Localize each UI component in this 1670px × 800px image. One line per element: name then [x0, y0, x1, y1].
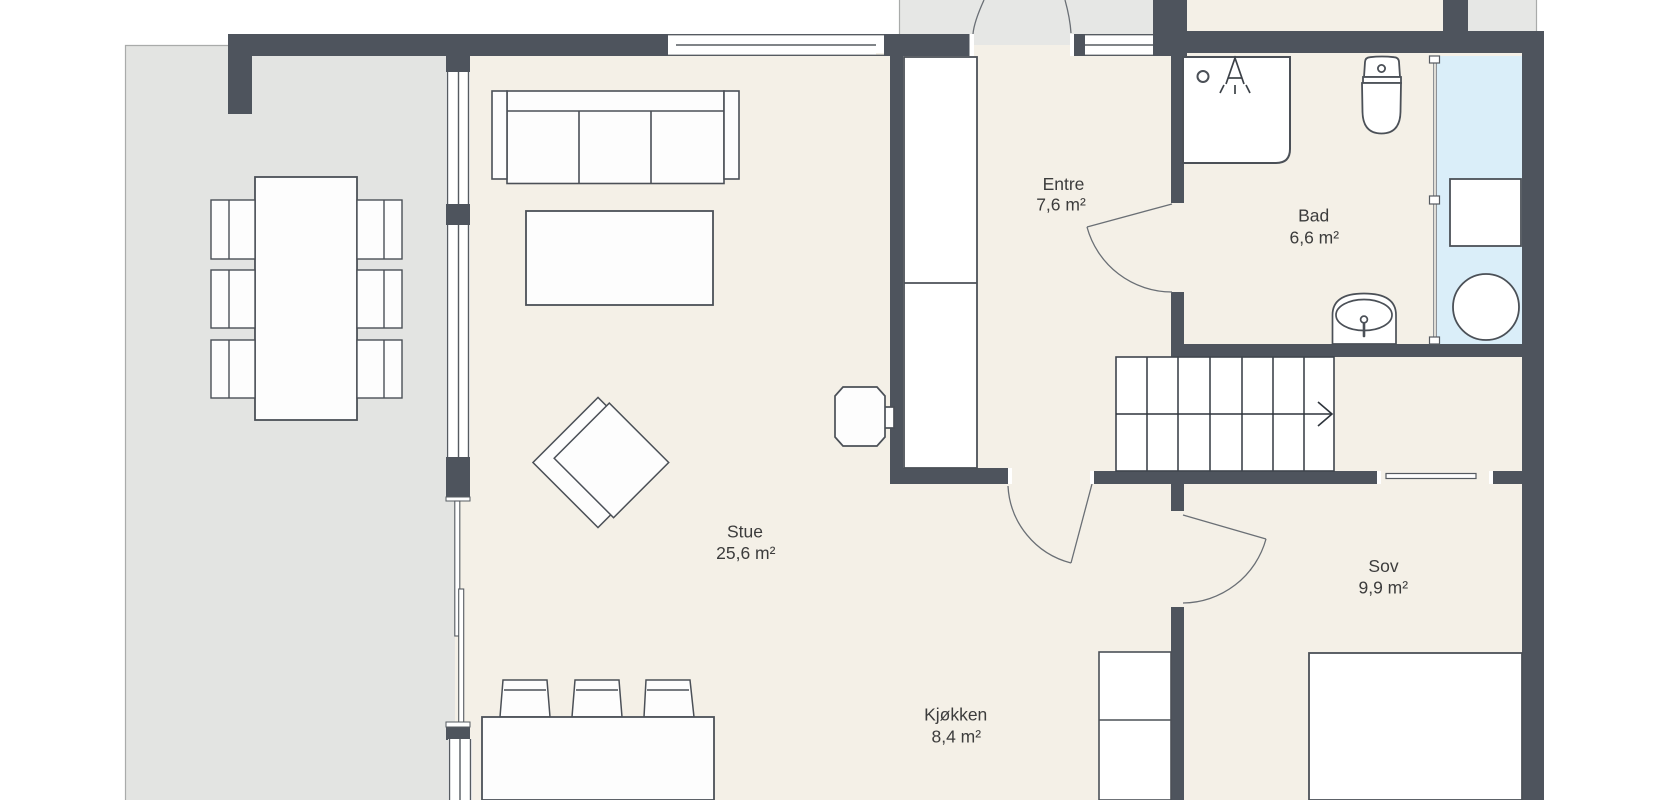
svg-text:6,6 m²: 6,6 m²	[1289, 228, 1339, 248]
svg-text:Kjøkken: Kjøkken	[924, 705, 987, 725]
svg-text:Sov: Sov	[1368, 556, 1398, 576]
svg-text:25,6 m²: 25,6 m²	[716, 543, 775, 563]
svg-text:Stue: Stue	[727, 522, 763, 542]
svg-text:Bad: Bad	[1298, 205, 1329, 225]
svg-text:Entre: Entre	[1043, 174, 1085, 194]
svg-text:8,4 m²: 8,4 m²	[931, 727, 981, 747]
svg-text:7,6 m²: 7,6 m²	[1036, 195, 1086, 215]
svg-text:9,9 m²: 9,9 m²	[1358, 578, 1408, 598]
